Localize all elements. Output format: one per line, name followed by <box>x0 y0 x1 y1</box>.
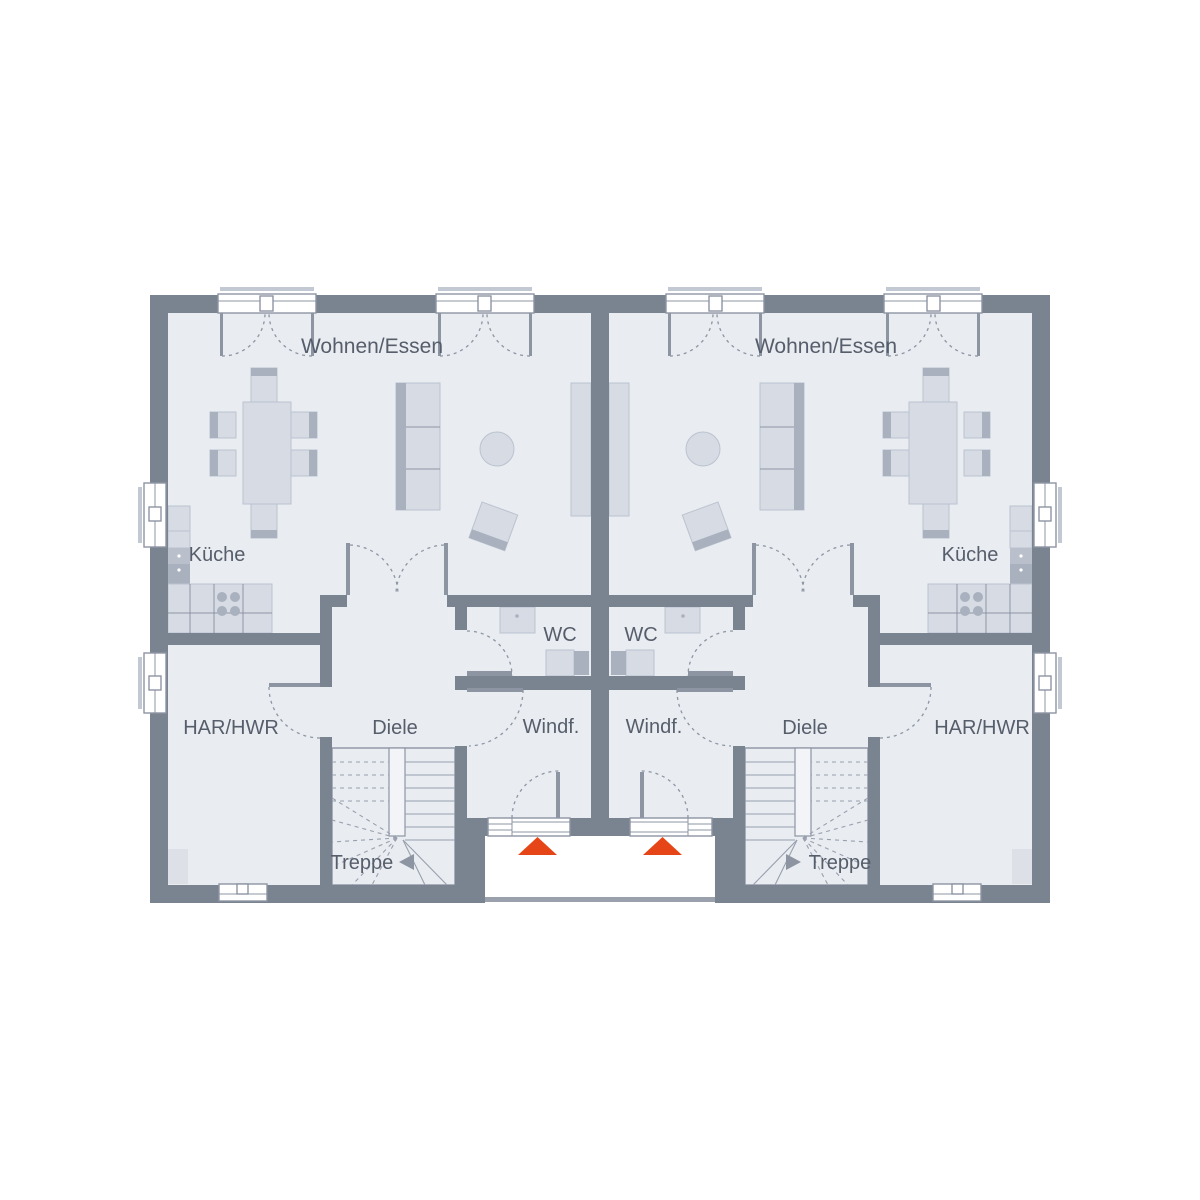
housing-unit-right <box>600 287 1062 903</box>
room-label-utility-left: HAR/HWR <box>183 717 279 739</box>
room-label-kitchen-right: Küche <box>942 544 999 566</box>
room-label-kitchen-left: Küche <box>189 544 246 566</box>
stair-void <box>389 748 405 836</box>
room-label-wc-left: WC <box>543 624 576 646</box>
room-label-living-right: Wohnen/Essen <box>755 335 897 358</box>
room-label-stairs-left: Treppe <box>331 852 394 874</box>
room-label-stairs-right: Treppe <box>809 852 872 874</box>
room-label-hallway-right: Diele <box>782 717 828 739</box>
porch-edge <box>485 897 600 902</box>
window <box>138 653 166 713</box>
kitchen-appliance <box>168 564 190 584</box>
window <box>219 884 267 901</box>
room-label-vestibule-right: Windf. <box>626 716 683 738</box>
dining-table <box>243 402 291 504</box>
room-label-wc-right: WC <box>624 624 657 646</box>
room-label-living-left: Wohnen/Essen <box>301 335 443 358</box>
room-label-utility-right: HAR/HWR <box>934 717 1030 739</box>
room-label-vestibule-left: Windf. <box>523 716 580 738</box>
floor-plan-page: Wohnen/Essen Küche HAR/HWR Diele WC Wind… <box>0 0 1200 1200</box>
floor-plan-canvas: Wohnen/Essen Küche HAR/HWR Diele WC Wind… <box>0 0 1200 1200</box>
utility-equipment <box>168 849 188 884</box>
party-wall <box>591 295 600 818</box>
wc-sink <box>500 607 535 633</box>
kitchen-tall-cabinet <box>168 506 190 531</box>
coffee-table <box>480 432 514 466</box>
tv-board <box>571 383 591 516</box>
window <box>138 483 166 547</box>
sofa <box>396 383 440 510</box>
wc-toilet <box>546 650 574 676</box>
housing-unit-left <box>138 287 600 903</box>
room-label-hallway-left: Diele <box>372 717 418 739</box>
